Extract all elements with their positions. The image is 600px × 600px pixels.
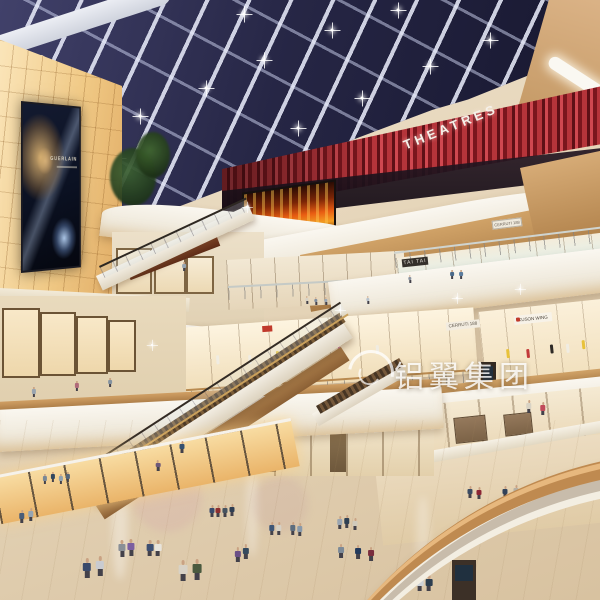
light-sparkle-icon xyxy=(331,29,334,32)
watermark-text: 铝翼集团 xyxy=(394,352,534,396)
person xyxy=(355,545,361,559)
person xyxy=(344,515,349,528)
person xyxy=(324,297,327,305)
person xyxy=(108,378,112,387)
person-torso xyxy=(193,564,202,573)
person xyxy=(408,275,411,283)
person-legs xyxy=(270,531,273,535)
person xyxy=(314,297,317,305)
light-sparkle-icon xyxy=(139,115,142,118)
person xyxy=(305,296,308,304)
light-sparkle-icon xyxy=(339,309,341,311)
person-legs xyxy=(339,553,342,558)
person-legs xyxy=(451,276,453,279)
person-legs xyxy=(60,481,62,484)
person-legs xyxy=(345,524,348,528)
person-legs xyxy=(217,513,220,517)
light-sparkle-icon xyxy=(151,344,153,346)
person xyxy=(450,270,454,279)
person xyxy=(83,558,91,578)
person-legs xyxy=(541,411,544,415)
person xyxy=(337,516,342,529)
person-legs xyxy=(76,388,78,391)
watermark: 铝翼集团 xyxy=(348,344,578,400)
person-legs xyxy=(244,554,248,559)
person xyxy=(235,547,241,562)
person-legs xyxy=(369,556,372,561)
person xyxy=(127,539,134,556)
person-legs xyxy=(306,301,308,304)
mannequin xyxy=(582,340,586,349)
storefront xyxy=(186,256,214,294)
person xyxy=(179,560,188,581)
mall-atrium-render: GUERLAIN THEATRES TAI TAI CERRUTI 188 xyxy=(0,0,600,600)
person-torso xyxy=(147,544,154,551)
person-legs xyxy=(338,525,341,529)
person xyxy=(222,505,227,517)
person xyxy=(179,441,184,453)
person xyxy=(32,387,36,397)
person-legs xyxy=(157,467,160,471)
person xyxy=(467,486,472,498)
person xyxy=(193,559,202,580)
mannequin xyxy=(216,355,220,364)
person-legs xyxy=(460,276,462,279)
person-legs xyxy=(236,557,240,562)
person xyxy=(182,262,186,271)
person-legs xyxy=(354,526,357,530)
person-legs xyxy=(325,302,327,305)
person-legs xyxy=(291,531,294,535)
person-torso xyxy=(96,561,104,569)
person-legs xyxy=(29,517,32,521)
person xyxy=(59,474,63,484)
person xyxy=(526,400,531,413)
person xyxy=(118,540,125,557)
person-legs xyxy=(85,571,90,578)
person xyxy=(66,472,70,482)
light-sparkle-icon xyxy=(456,297,458,299)
person-legs xyxy=(67,479,69,482)
person xyxy=(540,402,545,415)
person xyxy=(147,540,154,556)
person xyxy=(368,547,374,561)
person-legs xyxy=(277,531,280,535)
person-legs xyxy=(194,573,199,580)
person xyxy=(28,508,33,521)
light-sparkle-icon xyxy=(519,288,521,290)
person xyxy=(96,556,104,576)
billboard-subtext-line xyxy=(57,166,77,168)
person-torso xyxy=(118,544,125,551)
person-legs xyxy=(98,569,103,576)
person-legs xyxy=(231,512,234,516)
led-billboard: GUERLAIN xyxy=(21,101,81,273)
person-legs xyxy=(148,551,152,556)
person-legs xyxy=(129,550,133,556)
person-legs xyxy=(367,301,369,304)
light-sparkle-icon xyxy=(397,9,400,12)
person xyxy=(155,540,162,556)
person-legs xyxy=(211,513,214,517)
person xyxy=(352,518,357,530)
person xyxy=(366,296,369,304)
person-legs xyxy=(109,384,111,387)
storefront xyxy=(2,308,40,378)
person xyxy=(459,270,463,279)
storefront xyxy=(76,316,108,374)
person-torso xyxy=(83,563,91,571)
person-torso xyxy=(155,544,162,551)
person-legs xyxy=(120,551,124,557)
person xyxy=(209,505,214,517)
person-legs xyxy=(52,479,54,482)
level1-left-corridor xyxy=(0,296,186,408)
person-legs xyxy=(356,554,359,559)
person-legs xyxy=(224,513,227,517)
person xyxy=(51,472,55,482)
person-legs xyxy=(409,280,411,283)
person xyxy=(75,381,79,391)
person xyxy=(215,505,220,517)
person xyxy=(290,522,295,535)
person xyxy=(243,544,249,559)
person xyxy=(229,504,234,516)
person-legs xyxy=(20,519,23,523)
light-sparkle-icon xyxy=(263,59,266,62)
person xyxy=(269,522,274,535)
light-sparkle-icon xyxy=(246,206,248,208)
person-legs xyxy=(469,494,472,498)
person xyxy=(297,523,302,536)
indoor-tree xyxy=(136,132,170,178)
person-legs xyxy=(181,449,184,453)
light-sparkle-icon xyxy=(429,65,432,68)
light-sparkle-icon xyxy=(489,39,492,42)
person-legs xyxy=(478,495,481,499)
light-sparkle-icon xyxy=(361,97,364,100)
person-legs xyxy=(183,268,185,271)
person-torso xyxy=(179,565,188,574)
light-sparkle-icon xyxy=(297,127,300,130)
storefront xyxy=(40,312,76,376)
directory-kiosk xyxy=(452,560,476,600)
person xyxy=(276,522,281,535)
person-legs xyxy=(315,302,317,305)
person-legs xyxy=(156,551,160,556)
person xyxy=(156,460,161,471)
person-torso xyxy=(127,543,134,550)
person-legs xyxy=(44,481,46,484)
light-sparkle-icon xyxy=(243,13,246,16)
light-sparkle-icon xyxy=(205,87,208,90)
billboard-brand-text: GUERLAIN xyxy=(50,156,77,163)
store-logo xyxy=(262,325,272,332)
person xyxy=(19,510,24,523)
person-legs xyxy=(180,574,185,581)
person-legs xyxy=(527,409,530,413)
person xyxy=(43,474,47,484)
person-legs xyxy=(298,532,301,536)
storefront xyxy=(108,320,136,372)
person xyxy=(476,487,481,499)
person-legs xyxy=(33,394,35,397)
person xyxy=(338,544,344,558)
